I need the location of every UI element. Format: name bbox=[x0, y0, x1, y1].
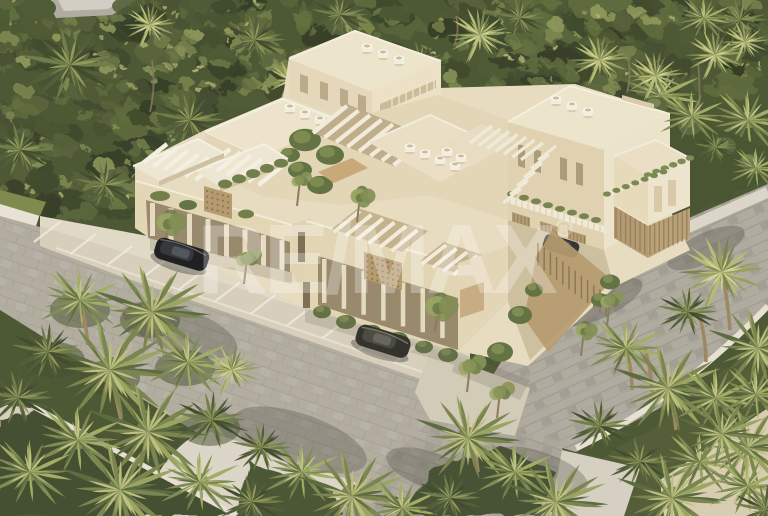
svg-text:RE/MAX: RE/MAX bbox=[197, 204, 558, 314]
svg-text:R: R bbox=[560, 224, 568, 236]
